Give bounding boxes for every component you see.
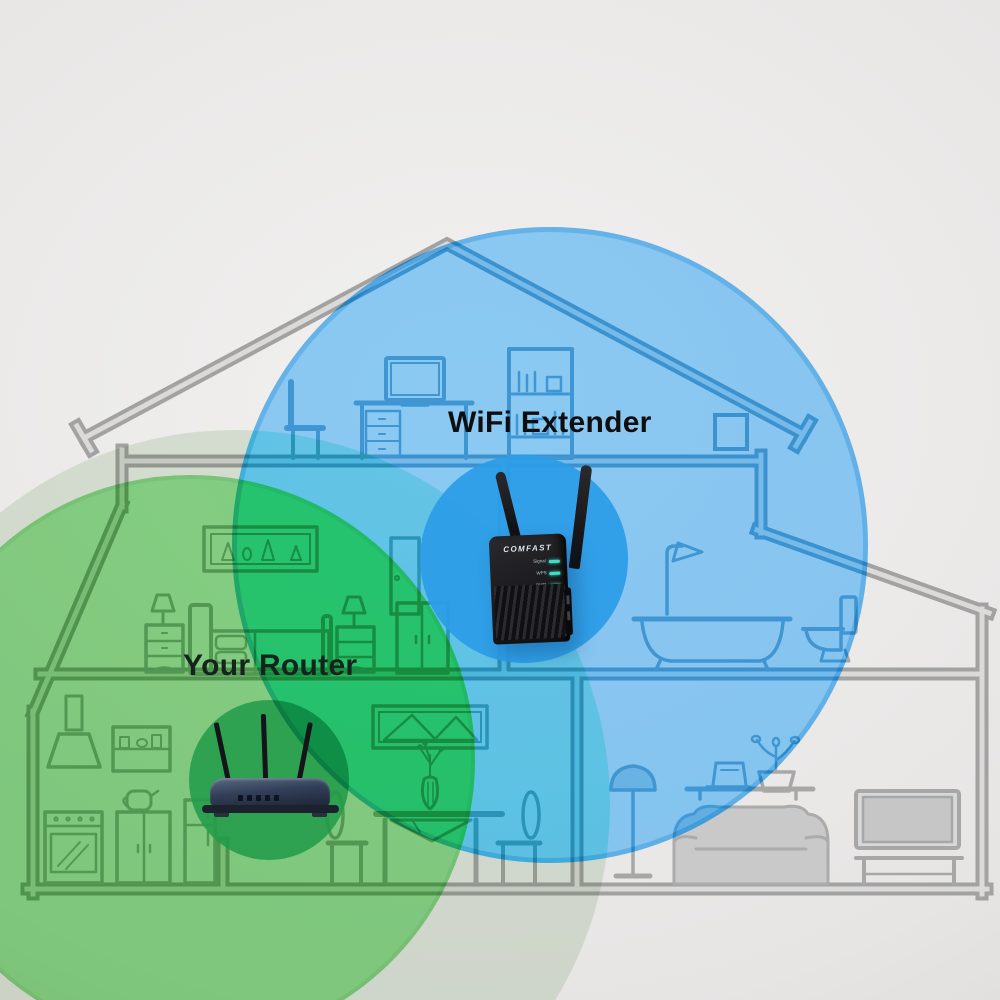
router-antenna-middle-icon xyxy=(261,714,268,780)
extender-antenna-left-icon xyxy=(495,471,522,541)
led-row-wps: WPS xyxy=(535,570,561,577)
router-antenna-left-icon xyxy=(214,722,232,784)
extender-side-buttons xyxy=(564,587,573,635)
tv-stand-icon xyxy=(856,858,962,884)
wifi-extender-coverage-diagram: COMFAST Signal WPS PWR xyxy=(0,0,1000,1000)
extender-label: WiFi Extender xyxy=(448,406,652,440)
led-label-signal: Signal xyxy=(533,559,546,565)
router-body xyxy=(210,778,330,806)
router-device xyxy=(198,702,343,824)
router-foot-icon xyxy=(312,813,327,817)
led-indicator-icon xyxy=(549,559,560,562)
router-base xyxy=(202,805,339,813)
led-row-signal: Signal xyxy=(532,558,560,565)
router-antenna-right-icon xyxy=(296,722,313,784)
router-ports xyxy=(238,795,279,801)
extender-brand-logo: COMFAST xyxy=(489,542,566,554)
led-indicator-icon xyxy=(549,571,560,574)
wifi-extender-device: COMFAST Signal WPS PWR xyxy=(483,455,588,650)
router-foot-icon xyxy=(214,813,229,817)
router-label: Your Router xyxy=(183,649,357,683)
tv-icon xyxy=(856,791,959,848)
extender-body: COMFAST Signal WPS PWR xyxy=(489,533,571,644)
extender-vent-ribs xyxy=(494,583,567,640)
led-label-wps: WPS xyxy=(536,571,546,577)
